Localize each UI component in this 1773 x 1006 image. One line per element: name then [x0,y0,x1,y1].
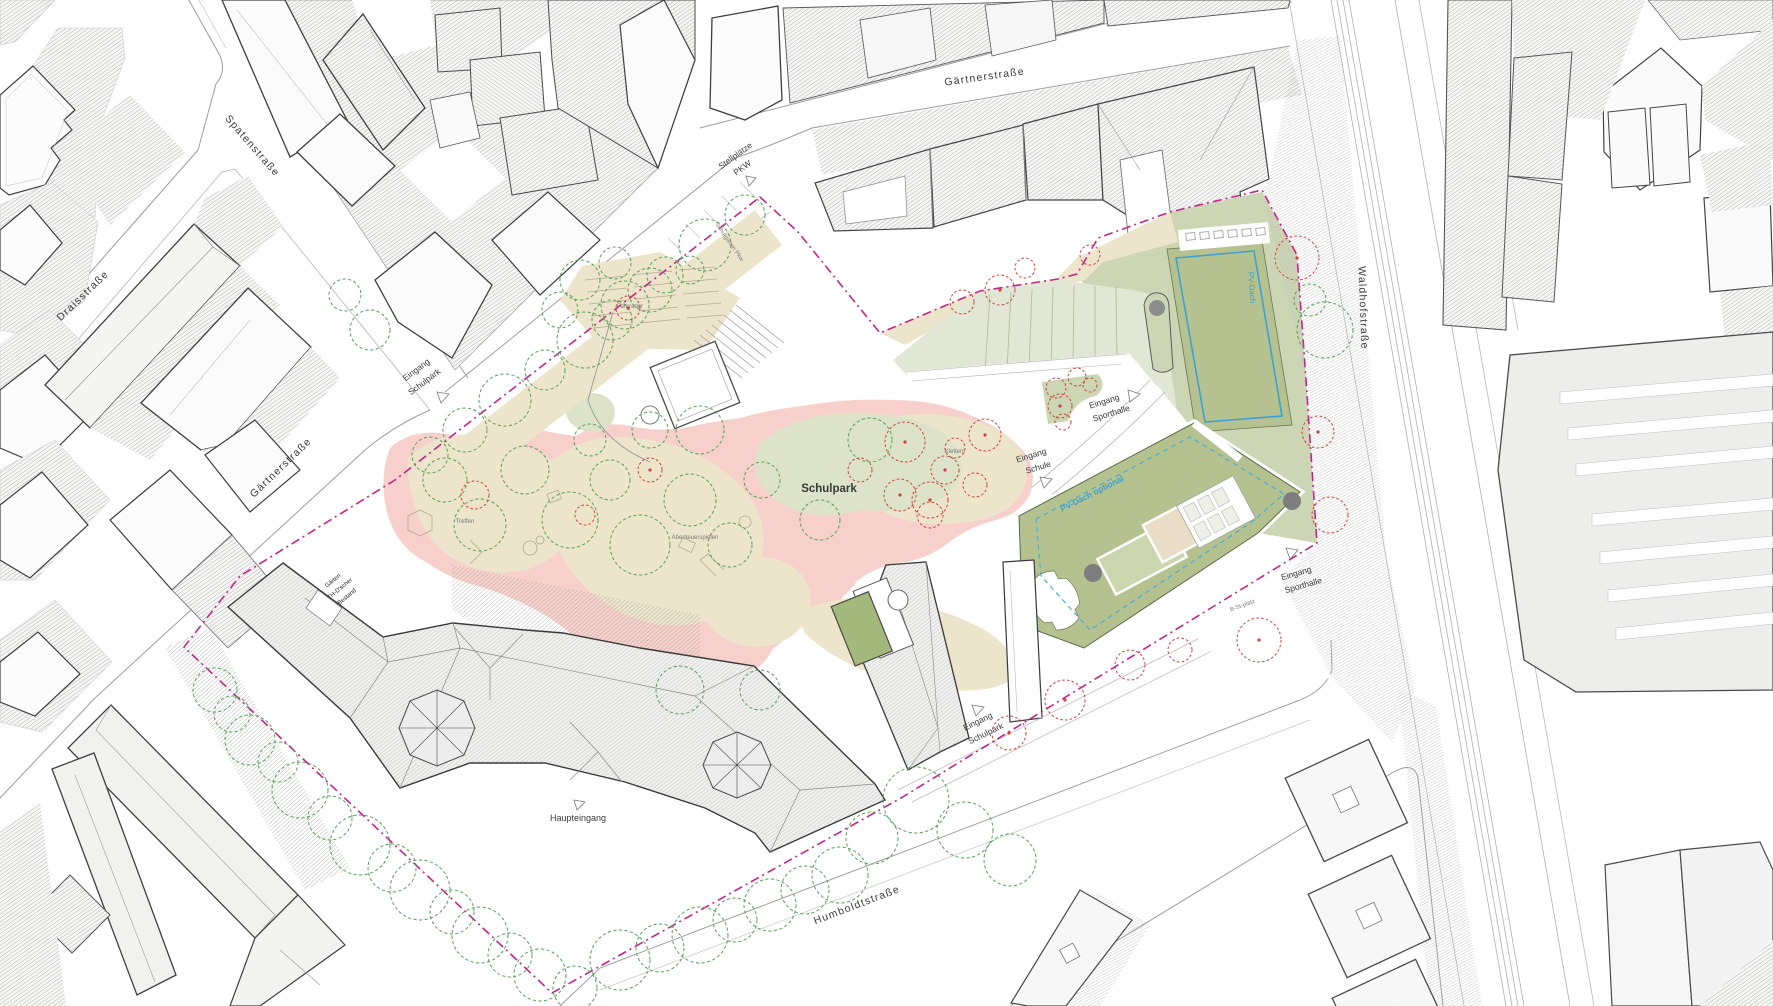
svg-text:Treffen: Treffen [456,519,475,525]
svg-text:Schulpark: Schulpark [801,483,857,495]
svg-text:Fahrräder: Fahrräder [617,304,643,310]
svg-text:Klettern: Klettern [945,449,966,455]
svg-text:Haupteingang: Haupteingang [550,813,606,823]
svg-text:Abenteuerspielen: Abenteuerspielen [672,535,719,541]
